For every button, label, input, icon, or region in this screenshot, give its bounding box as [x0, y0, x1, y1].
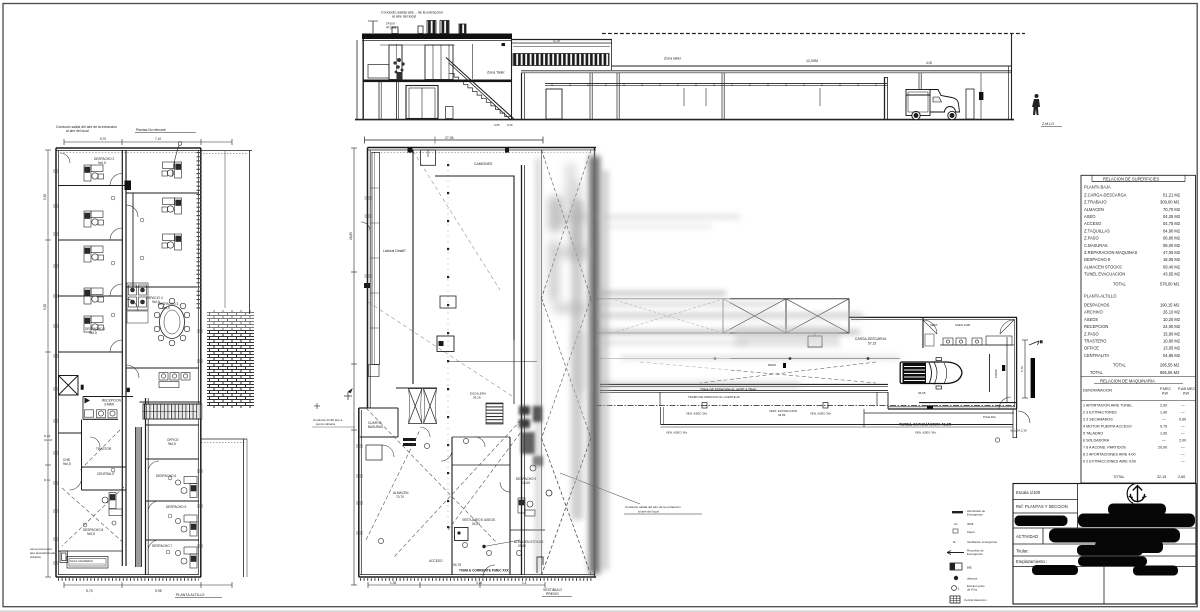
- svg-text:D.11: D.11: [44, 478, 50, 482]
- svg-text:Zona Taller: Zona Taller: [487, 71, 506, 75]
- svg-text:04,75: 04,75: [453, 563, 461, 567]
- svg-text:5,30: 5,30: [43, 304, 47, 310]
- svg-text:KW: KW: [1183, 392, 1189, 396]
- svg-text:ACCESO: ACCESO: [1084, 221, 1101, 226]
- svg-text:2 3 EXTRACTORES: 2 3 EXTRACTORES: [1083, 411, 1117, 415]
- svg-text:27,05: 27,05: [445, 136, 454, 140]
- svg-text:al aire del local: al aire del local: [638, 510, 659, 514]
- svg-text:9x0,5: 9x0,5: [89, 331, 97, 335]
- svg-text:RELACION DE MAQUINARIA: RELACION DE MAQUINARIA: [1100, 378, 1155, 383]
- svg-text:10,20 M2: 10,20 M2: [1163, 317, 1181, 322]
- svg-text:VEN. ASEO 3Kv: VEN. ASEO 3Kv: [915, 431, 937, 435]
- svg-text:13,05 M2: 13,05 M2: [1163, 346, 1181, 351]
- svg-text:de 6 Kg: de 6 Kg: [967, 588, 977, 592]
- svg-text:Ventilacion emergencia: Ventilacion emergencia: [967, 540, 997, 544]
- svg-text:12,00M: 12,00M: [806, 59, 818, 63]
- svg-text:5 TALADRO: 5 TALADRO: [1083, 432, 1103, 436]
- svg-text:30x8: 30x8: [967, 522, 974, 526]
- svg-text:47 plas: 47 plas: [386, 26, 397, 30]
- svg-text:Central deteccion: Central deteccion: [964, 598, 987, 602]
- svg-text:34,65: 34,65: [778, 413, 786, 417]
- svg-text:OFFICE: OFFICE: [1084, 346, 1099, 351]
- svg-text:BASURAS: BASURAS: [368, 425, 383, 429]
- svg-text:4,00: 4,00: [926, 61, 932, 65]
- svg-text:—: —: [1162, 439, 1166, 443]
- svg-text:9x0,5: 9x0,5: [98, 161, 106, 165]
- svg-text:Emergencia: Emergencia: [967, 513, 983, 517]
- svg-text:4,10: 4,10: [553, 39, 560, 43]
- svg-text:2,60: 2,60: [1178, 475, 1185, 479]
- svg-text:P.AB MEC: P.AB MEC: [1178, 387, 1195, 391]
- svg-text:Tapon: Tapon: [967, 530, 975, 534]
- svg-text:9x0,5: 9x0,5: [162, 306, 170, 310]
- svg-text:al aire del local: al aire del local: [392, 15, 416, 19]
- svg-text:ALMACEN: ALMACEN: [1084, 207, 1104, 212]
- svg-text:punto cubierta: punto cubierta: [316, 422, 335, 426]
- svg-text:15,80 M2: 15,80 M2: [1163, 331, 1181, 336]
- svg-text:7,10: 7,10: [155, 137, 161, 141]
- svg-text:04,85 M2: 04,85 M2: [1163, 353, 1181, 358]
- svg-text:Z.REPARACION MAQUINAS: Z.REPARACION MAQUINAS: [1084, 250, 1138, 255]
- svg-text:Z.CARGA-DESCARGA: Z.CARGA-DESCARGA: [1084, 192, 1127, 197]
- svg-text:Z.M.LO: Z.M.LO: [1042, 122, 1054, 126]
- svg-text:VEN. ASEO 3Kv: VEN. ASEO 3Kv: [810, 412, 832, 416]
- svg-text:ASEO: ASEO: [1084, 214, 1095, 219]
- svg-text:7 6 A ACOND. PARTIDOS: 7 6 A ACOND. PARTIDOS: [1083, 446, 1126, 450]
- svg-text:Z.TAQUILLAS: Z.TAQUILLAS: [1084, 228, 1110, 233]
- svg-text:VEN. ASEO 3Kv: VEN. ASEO 3Kv: [666, 431, 688, 435]
- svg-text:Z.TRABAJO: Z.TRABAJO: [1084, 200, 1107, 205]
- svg-text:1,4: 1,4: [522, 581, 527, 585]
- svg-text:08,00 M2: 08,00 M2: [1163, 243, 1181, 248]
- svg-text:DESPACHOS: DESPACHOS: [1084, 303, 1110, 308]
- svg-text:0,60: 0,60: [1179, 418, 1186, 422]
- svg-text:1,00: 1,00: [1160, 432, 1167, 436]
- svg-text:KW: KW: [1162, 392, 1168, 396]
- svg-text:Laboral DetallT: Laboral DetallT: [383, 249, 406, 253]
- svg-text:VEST.: VEST.: [930, 323, 938, 327]
- svg-text:TRASTOR: TRASTOR: [96, 447, 112, 451]
- svg-text:ARCHIVO: ARCHIVO: [1084, 310, 1103, 315]
- svg-text:190,15 M2: 190,15 M2: [1160, 303, 1180, 308]
- svg-text:ALMACEN STOCKS: ALMACEN STOCKS: [1084, 264, 1122, 269]
- svg-text:47,05 M2: 47,05 M2: [1163, 250, 1181, 255]
- svg-text:P.SALIDA: P.SALIDA: [983, 415, 996, 419]
- svg-text:VEN. ASEO 3Kv: VEN. ASEO 3Kv: [686, 412, 708, 416]
- svg-text:578,00 M2: 578,00 M2: [1160, 282, 1180, 287]
- svg-text:PLANTA ALTILLO: PLANTA ALTILLO: [1084, 294, 1116, 299]
- svg-text:51,21 M2: 51,21 M2: [1163, 192, 1181, 197]
- svg-text:09,40: 09,40: [518, 544, 526, 548]
- svg-text:5,70: 5,70: [1020, 366, 1024, 372]
- svg-text:TOTAL: TOTAL: [1113, 475, 1125, 479]
- svg-text:C.BASURAS: C.BASURAS: [1084, 243, 1108, 248]
- svg-text:TOTAL: TOTAL: [1090, 370, 1104, 375]
- svg-text:3,10: 3,10: [476, 581, 482, 585]
- svg-text:28,85: 28,85: [349, 232, 353, 240]
- svg-text:wc: wc: [954, 522, 958, 526]
- svg-text:—: —: [1181, 446, 1185, 450]
- svg-text:DESPACHO 5: DESPACHO 5: [166, 505, 187, 509]
- svg-text:ASEO 2x05: ASEO 2x05: [955, 323, 970, 327]
- svg-text:—: —: [1181, 425, 1185, 429]
- svg-text:8 2 APORTACIONES AIRE 4,00: 8 2 APORTACIONES AIRE 4,00: [1083, 453, 1136, 457]
- svg-text:Z.PASO: Z.PASO: [1084, 331, 1099, 336]
- svg-text:2,00: 2,00: [1179, 439, 1186, 443]
- svg-text:Conducto salida del aire de la: Conducto salida del aire de la extraccio…: [625, 505, 681, 509]
- svg-text:CENTRALITA: CENTRALITA: [1084, 353, 1109, 358]
- svg-text:RECEPCION: RECEPCION: [1084, 324, 1108, 329]
- svg-text:309,00 M2: 309,00 M2: [1160, 200, 1180, 205]
- svg-text:COMP: COMP: [994, 369, 998, 378]
- svg-text:04,90 M2: 04,90 M2: [1163, 228, 1181, 233]
- svg-text:CENTRALIT: CENTRALIT: [97, 472, 115, 476]
- svg-text:24,00 M2: 24,00 M2: [1163, 324, 1181, 329]
- svg-text:Z.PASO: Z.PASO: [1084, 236, 1099, 241]
- svg-text:P.MEC: P.MEC: [1160, 387, 1172, 391]
- svg-text:—: —: [1181, 460, 1185, 464]
- svg-text:CAMIONES: CAMIONES: [474, 162, 493, 166]
- svg-text:70,70 M2: 70,70 M2: [1163, 207, 1181, 212]
- svg-text:Titular:: Titular:: [1016, 549, 1029, 554]
- svg-text:1,40: 1,40: [1160, 411, 1167, 415]
- svg-text:26,10 M2: 26,10 M2: [1163, 310, 1181, 315]
- svg-text:—: —: [1181, 453, 1185, 457]
- svg-text:5,95: 5,95: [155, 589, 162, 593]
- svg-text:6 SOLDADORA: 6 SOLDADORA: [1083, 439, 1110, 443]
- svg-text:1,35: 1,35: [390, 581, 396, 585]
- svg-text:9x0,5: 9x0,5: [63, 462, 71, 466]
- svg-text:865,55 M2: 865,55 M2: [1160, 370, 1180, 375]
- svg-text:06,90 M2: 06,90 M2: [1163, 236, 1181, 241]
- svg-text:04,25 M2: 04,25 M2: [1163, 214, 1181, 219]
- svg-text:DENOMINACION: DENOMINACION: [1083, 389, 1112, 393]
- svg-text:36,05: 36,05: [918, 391, 926, 395]
- svg-text:18,05: 18,05: [522, 481, 530, 485]
- svg-text:TOTAL: TOTAL: [1113, 363, 1127, 368]
- svg-text:DESPACHO 6: DESPACHO 6: [156, 474, 177, 478]
- svg-text:04,75 M2: 04,75 M2: [1163, 221, 1181, 226]
- svg-text:10,80 M2: 10,80 M2: [1163, 339, 1181, 344]
- svg-text:9x0,5: 9x0,5: [168, 442, 176, 446]
- svg-text:04,90: 04,90: [472, 522, 480, 526]
- svg-text:0,30: 0,30: [507, 123, 513, 127]
- svg-text:DESP.: DESP.: [768, 363, 776, 367]
- svg-text:2,00: 2,00: [1160, 404, 1167, 408]
- svg-text:1 APORTACION AIRE TUNEL: 1 APORTACION AIRE TUNEL: [1083, 404, 1132, 408]
- svg-text:—: —: [1181, 432, 1185, 436]
- svg-text:TUNEL EVACUACION: TUNEL EVACUACION: [1084, 272, 1125, 277]
- svg-text:DESPACHO 9: DESPACHO 9: [1084, 257, 1111, 262]
- svg-text:ZONA DE ATENCION AL ABTE A TRA: ZONA DE ATENCION AL ABTE A TRAV: [700, 388, 757, 392]
- svg-text:57,15: 57,15: [868, 342, 876, 346]
- svg-text:Escala 1/100: Escala 1/100: [1016, 490, 1041, 495]
- svg-text:Zona taller: Zona taller: [664, 57, 682, 61]
- svg-text:PREVIO: PREVIO: [546, 592, 559, 596]
- svg-text:9 2 EXTRACCIONES AIRE 4,00: 9 2 EXTRACCIONES AIRE 4,00: [1083, 460, 1136, 464]
- svg-text:RELACION DE SUPERFICIES: RELACION DE SUPERFICIES: [1103, 177, 1159, 182]
- svg-text:ASEOS: ASEOS: [1084, 317, 1098, 322]
- svg-text:SALIDA 2,30: SALIDA 2,30: [1010, 429, 1027, 433]
- svg-text:CARGA-DESCARGA: CARGA-DESCARGA: [855, 337, 887, 341]
- svg-text:Emplazamiento :: Emplazamiento :: [1016, 559, 1047, 564]
- svg-text:20,00: 20,00: [1158, 446, 1167, 450]
- svg-text:—: —: [1162, 418, 1166, 422]
- svg-text:4 MOTOR PUERTA ACCESO: 4 MOTOR PUERTA ACCESO: [1083, 425, 1132, 429]
- svg-text:9x0,5: 9x0,5: [152, 300, 160, 304]
- svg-text:TOTAL: TOTAL: [1113, 282, 1127, 287]
- svg-text:9x0,5: 9x0,5: [87, 532, 95, 536]
- svg-text:36,18: 36,18: [473, 396, 481, 400]
- svg-text:TUNEL EVACUACION 43,65: TUNEL EVACUACION 43,65: [899, 422, 952, 427]
- svg-text:BIE: BIE: [967, 566, 972, 570]
- svg-text:32,15: 32,15: [1157, 475, 1166, 479]
- svg-text:TRASTERO: TRASTERO: [1084, 339, 1106, 344]
- svg-text:—: —: [1181, 411, 1185, 415]
- svg-text:3-MAR: 3-MAR: [104, 403, 115, 407]
- svg-text:—: —: [1181, 404, 1185, 408]
- svg-text:Plantas No relevant: Plantas No relevant: [136, 128, 166, 132]
- svg-text:5,70: 5,70: [86, 589, 93, 593]
- svg-text:5,50: 5,50: [43, 194, 47, 200]
- svg-text:09,40 M2: 09,40 M2: [1163, 264, 1181, 269]
- svg-text:PLANTA ALTILLO: PLANTA ALTILLO: [176, 593, 205, 597]
- svg-text:5,70: 5,70: [100, 137, 106, 141]
- svg-text:ACTIVIDAD: ACTIVIDAD: [1016, 534, 1038, 539]
- svg-text:detector: detector: [967, 577, 977, 581]
- svg-text:0,75: 0,75: [1160, 425, 1167, 429]
- svg-text:cubierta: cubierta: [30, 555, 41, 559]
- svg-text:0,05: 0,05: [494, 123, 500, 127]
- svg-text:295,55 M2: 295,55 M2: [1160, 363, 1180, 368]
- svg-text:Emergencia: Emergencia: [967, 552, 983, 556]
- svg-text:SALA CALDERAS: SALA CALDERAS: [70, 559, 93, 563]
- svg-text:TOMA E CORRIENTE P.MEC XXX: TOMA E CORRIENTE P.MEC XXX: [459, 569, 510, 573]
- svg-text:DESPACHO 7: DESPACHO 7: [152, 544, 173, 548]
- svg-text:3 3 SECAMANOS: 3 3 SECAMANOS: [1083, 418, 1113, 422]
- svg-text:70,70: 70,70: [396, 495, 404, 499]
- svg-text:18,05 M2: 18,05 M2: [1163, 257, 1181, 262]
- svg-text:t: t: [958, 587, 959, 591]
- svg-text:TRAMO DE ATENCION AL CLIENTE A: TRAMO DE ATENCION AL CLIENTE AV: [688, 395, 740, 399]
- svg-text:43,65 M2: 43,65 M2: [1163, 272, 1181, 277]
- svg-text:Ref: PLANTAS Y SECCION: Ref: PLANTAS Y SECCION: [1016, 504, 1068, 509]
- svg-text:al aire del local: al aire del local: [66, 129, 89, 133]
- svg-text:PLANTA BAJA: PLANTA BAJA: [1084, 185, 1111, 190]
- svg-text:ACCESO: ACCESO: [429, 559, 443, 563]
